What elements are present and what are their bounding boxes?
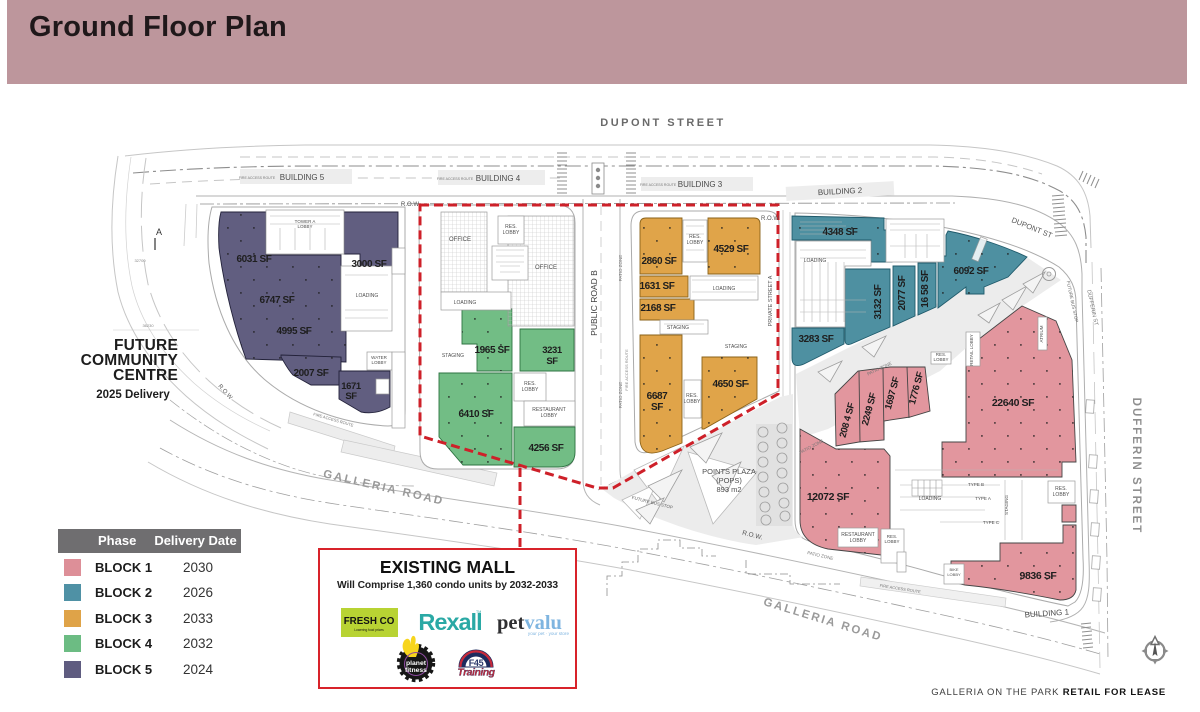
- svg-text:3231: 3231: [542, 345, 563, 356]
- svg-text:6410 SF: 6410 SF: [458, 409, 493, 420]
- svg-text:R.O.W: R.O.W: [401, 202, 419, 208]
- svg-text:LOADING: LOADING: [713, 286, 736, 292]
- svg-text:LOBBY: LOBBY: [687, 240, 704, 246]
- svg-text:DUPONT ST: DUPONT ST: [1010, 215, 1054, 240]
- svg-text:36230: 36230: [142, 323, 154, 328]
- svg-text:BUILDING 3: BUILDING 3: [678, 180, 723, 189]
- svg-text:STAGING: STAGING: [725, 344, 747, 350]
- svg-text:GALLERIA ROAD: GALLERIA ROAD: [762, 596, 884, 644]
- svg-text:16 58 SF: 16 58 SF: [920, 270, 931, 308]
- svg-text:LOBBY: LOBBY: [684, 399, 701, 405]
- svg-text:ATRIUM: ATRIUM: [1039, 325, 1044, 342]
- svg-text:TYPE C: TYPE C: [983, 520, 1000, 525]
- svg-text:R.O.W: R.O.W: [216, 384, 233, 402]
- svg-text:TYPE B: TYPE B: [968, 482, 984, 487]
- svg-text:2860 SF: 2860 SF: [641, 256, 676, 267]
- svg-text:OFFICE: OFFICE: [535, 265, 557, 271]
- svg-text:FIRE ACCESS ROUTE: FIRE ACCESS ROUTE: [640, 183, 677, 187]
- svg-text:LOBBY: LOBBY: [503, 230, 520, 236]
- svg-text:LOADING: LOADING: [919, 496, 942, 502]
- svg-text:RETAIL LOBBY: RETAIL LOBBY: [969, 334, 974, 366]
- svg-text:FRESH CO: FRESH CO: [344, 616, 395, 627]
- svg-text:LOADING: LOADING: [356, 293, 379, 299]
- svg-text:LOBBY: LOBBY: [297, 224, 312, 229]
- svg-text:TM: TM: [476, 610, 481, 614]
- svg-text:2007 SF: 2007 SF: [293, 368, 328, 379]
- svg-text:POINTS PLAZA: POINTS PLAZA: [702, 467, 756, 476]
- svg-text:SF: SF: [546, 356, 558, 367]
- svg-text:DUFFERIN STREET: DUFFERIN STREET: [1130, 398, 1142, 535]
- svg-text:FIRE ACCESS ROUTE: FIRE ACCESS ROUTE: [239, 176, 276, 180]
- svg-text:PATIO ZONE: PATIO ZONE: [807, 550, 834, 561]
- svg-text:LOADING: LOADING: [804, 258, 827, 264]
- svg-text:LOBBY: LOBBY: [522, 387, 539, 393]
- svg-text:LOBBY: LOBBY: [541, 413, 558, 419]
- svg-text:4256 SF: 4256 SF: [528, 443, 563, 454]
- svg-text:PATIO ZONE: PATIO ZONE: [618, 255, 623, 282]
- svg-text:SF: SF: [345, 391, 357, 402]
- svg-text:9836 SF: 9836 SF: [1020, 570, 1058, 582]
- svg-text:R.O.W: R.O.W: [761, 216, 779, 222]
- svg-text:Rexall: Rexall: [418, 609, 481, 635]
- svg-text:BUILDING 4: BUILDING 4: [476, 174, 521, 183]
- svg-text:LOBBY: LOBBY: [1053, 492, 1070, 498]
- svg-text:22640 SF: 22640 SF: [992, 397, 1035, 409]
- svg-text:2077 SF: 2077 SF: [897, 275, 908, 310]
- svg-text:LOBBY: LOBBY: [371, 360, 386, 365]
- svg-text:LOBBY: LOBBY: [933, 357, 948, 362]
- svg-text:LOBBY: LOBBY: [884, 539, 899, 544]
- svg-text:BUILDING 5: BUILDING 5: [280, 173, 325, 182]
- svg-text:4650 SF: 4650 SF: [712, 379, 747, 390]
- svg-text:LOADING: LOADING: [454, 300, 477, 306]
- svg-text:SF: SF: [651, 402, 663, 413]
- svg-text:PRIVATE STREET A: PRIVATE STREET A: [768, 275, 774, 326]
- svg-text:6687: 6687: [647, 391, 668, 402]
- svg-text:3000 SF: 3000 SF: [351, 259, 386, 270]
- svg-text:STAGING: STAGING: [1004, 495, 1009, 515]
- svg-text:12072 SF: 12072 SF: [807, 491, 850, 503]
- svg-text:STAGING: STAGING: [442, 353, 464, 359]
- svg-text:32700: 32700: [134, 258, 146, 263]
- svg-text:OFFICE: OFFICE: [449, 237, 471, 243]
- svg-text:3132 SF: 3132 SF: [873, 284, 884, 319]
- svg-text:FIRE ACCESS ROUTE: FIRE ACCESS ROUTE: [437, 177, 474, 181]
- svg-text:6092 SF: 6092 SF: [953, 266, 988, 277]
- svg-text:STAGING: STAGING: [667, 325, 689, 331]
- svg-text:BUILDING 1: BUILDING 1: [1024, 607, 1070, 619]
- svg-text:1631 SF: 1631 SF: [639, 281, 674, 292]
- svg-text:4995 SF: 4995 SF: [276, 326, 311, 337]
- svg-text:1965 SF: 1965 SF: [474, 345, 509, 356]
- svg-text:4529 SF: 4529 SF: [713, 244, 748, 255]
- svg-text:A: A: [156, 227, 162, 237]
- svg-text:TYPE A: TYPE A: [975, 496, 991, 501]
- svg-text:your pet · your store: your pet · your store: [528, 631, 570, 636]
- svg-text:GALLERIA ROAD: GALLERIA ROAD: [322, 468, 446, 508]
- svg-text:Training: Training: [457, 667, 495, 679]
- svg-text:2168 SF: 2168 SF: [640, 303, 675, 314]
- svg-text:DUPONT STREET: DUPONT STREET: [600, 117, 725, 129]
- svg-text:LOBBY: LOBBY: [850, 538, 867, 544]
- svg-text:(POPS): (POPS): [716, 476, 742, 485]
- svg-text:LOBBY: LOBBY: [947, 572, 961, 577]
- svg-text:6031 SF: 6031 SF: [236, 254, 271, 265]
- svg-text:4348 SF: 4348 SF: [822, 227, 857, 238]
- svg-text:6747 SF: 6747 SF: [259, 295, 294, 306]
- svg-text:Lowering food prices: Lowering food prices: [354, 628, 384, 632]
- svg-text:893 m2: 893 m2: [716, 485, 741, 494]
- svg-text:3283 SF: 3283 SF: [798, 334, 833, 345]
- svg-text:PUBLIC ROAD B: PUBLIC ROAD B: [589, 270, 599, 336]
- svg-text:planet: planet: [406, 660, 427, 667]
- svg-text:FIRE ACCESS ROUTE: FIRE ACCESS ROUTE: [624, 349, 629, 391]
- svg-text:DUFFERIN ST: DUFFERIN ST: [1085, 289, 1099, 326]
- svg-text:PATIO ZONE: PATIO ZONE: [618, 382, 623, 409]
- svg-text:fitness: fitness: [405, 667, 427, 674]
